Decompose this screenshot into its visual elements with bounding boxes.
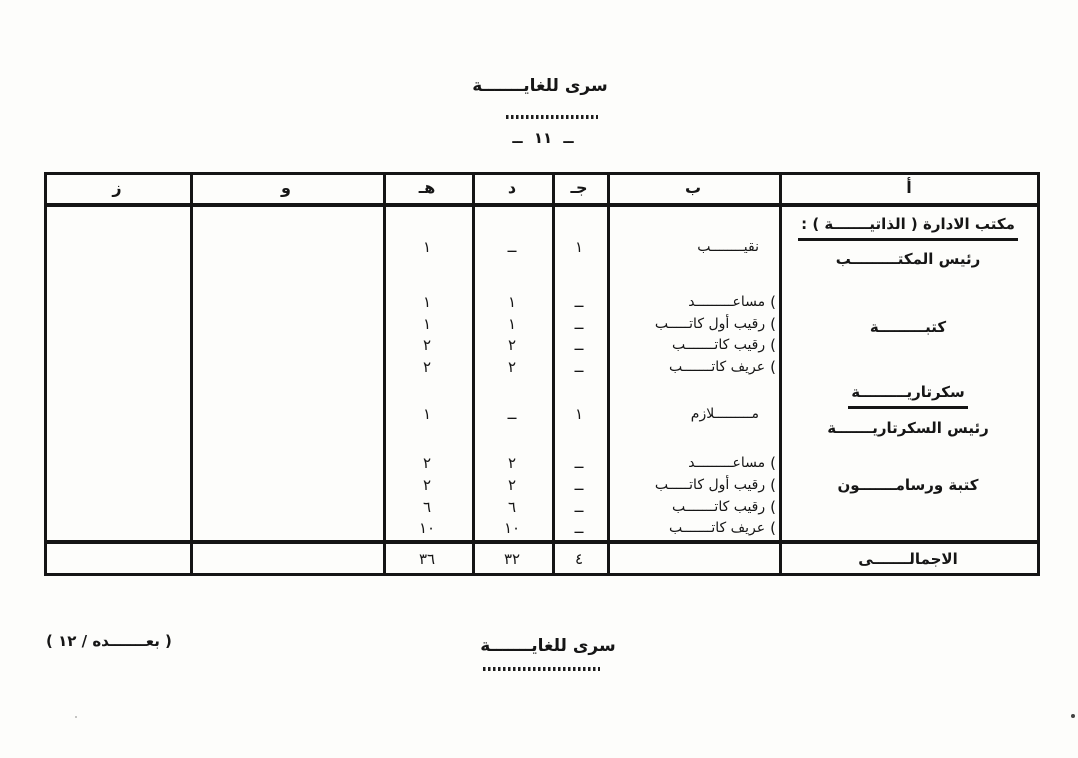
rank-row: ( مساعـــــــــد [688,292,776,312]
classification-banner-top: سرى للغايـــــــة [472,76,607,96]
rank-row: ( مساعـــــــــد [688,453,776,473]
rank-row: نقيــــــــب [697,237,759,257]
rank-label: رقيب كاتـــــــب [672,497,765,517]
header-separator [47,203,1037,207]
count-ncos: ٢ [490,453,534,473]
count-ncos: ٦ [490,497,534,517]
scan-speck [75,716,77,718]
totals-label: الاجمالـــــــى [783,549,1033,570]
rank-row: ( رقيب كاتـــــــب [672,335,776,355]
count-officers: ــ [557,335,601,355]
column-header-j: جـ [557,178,601,197]
totals-separator [47,540,1037,544]
rank-row: ( عريف كاتـــــــب [669,518,776,538]
column-header-a: أ [887,178,931,197]
group-brace: ( [770,475,776,495]
count-officers: ــ [557,475,601,495]
rank-row: مـــــــــلازم [691,404,759,424]
count-total: ١٠ [405,518,449,538]
staffing-table: أ ب جـ د هـ و ز مكتب الادارة ( الذاتيـــ… [44,172,1040,576]
rank-label: رقيب أول كاتـــــب [655,475,765,495]
category-title: سكرتاريـــــــــة [783,382,1033,409]
document-page: سرى للغايـــــــة ــ ١١ ــ أ ب جـ د هـ و… [0,0,1078,758]
count-officers: ١ [557,237,601,257]
rank-row: ( رقيب أول كاتـــــب [655,314,776,334]
rank-label: رقيب كاتـــــــب [672,335,765,355]
count-officers: ــ [557,518,601,538]
rank-row: ( عريف كاتـــــــب [669,357,776,377]
count-total: ١ [405,404,449,424]
count-ncos: ٢ [490,335,534,355]
rank-label: رقيب أول كاتـــــب [655,314,765,334]
rank-label: نقيــــــــب [697,237,759,257]
rank-label: مساعـــــــــد [688,453,765,473]
count-total: ١ [405,237,449,257]
group-brace: ( [770,335,776,355]
group-brace: ( [770,292,776,312]
rank-label: مساعـــــــــد [688,292,765,312]
column-divider [607,175,610,573]
count-ncos: ٢ [490,357,534,377]
column-divider [472,175,475,573]
count-total: ١ [405,292,449,312]
decorative-squiggle-bottom [483,667,600,671]
count-total: ٢ [405,453,449,473]
decorative-squiggle-top [506,115,598,119]
count-total: ٦ [405,497,449,517]
count-officers: ــ [557,357,601,377]
category-title: كتبـــــــــة [783,317,1033,338]
count-ncos: ــ [490,237,534,257]
classification-banner-bottom: سرى للغايـــــــة [480,636,615,656]
count-officers: ــ [557,497,601,517]
group-brace: ( [770,314,776,334]
group-brace: ( [770,497,776,517]
category-title: كتبة ورسامـــــــون [783,475,1033,496]
count-officers: ١ [557,404,601,424]
column-header-z: ز [95,178,139,197]
column-divider [552,175,555,573]
column-header-w: و [264,178,308,197]
group-brace: ( [770,453,776,473]
category-subtitle: رئيس السكرتاريـــــــة [783,418,1033,439]
category-subtitle: رئيس المكتـــــــــب [783,249,1033,270]
page-number: ــ ١١ ــ [512,129,573,147]
count-ncos: ١٠ [490,518,534,538]
group-brace: ( [770,518,776,538]
count-ncos: ٢ [490,475,534,495]
totals-total: ٣٦ [405,549,449,569]
column-divider [190,175,193,573]
count-total: ٢ [405,335,449,355]
continuation-note: ( بعـــــــده / ١٢ ) [46,632,172,650]
count-ncos: ١ [490,292,534,312]
count-officers: ــ [557,453,601,473]
category-title-text: سكرتاريـــــــــة [848,382,968,409]
rank-label: مـــــــــلازم [691,404,759,424]
count-officers: ــ [557,292,601,312]
rank-row: ( رقيب كاتـــــــب [672,497,776,517]
category-title: مكتب الادارة ( الذاتيـــــــة ) : [783,214,1033,241]
column-header-h: هـ [405,178,449,197]
count-officers: ــ [557,314,601,334]
group-brace: ( [770,357,776,377]
column-header-d: د [490,178,534,197]
category-title-text: مكتب الادارة ( الذاتيـــــــة ) : [798,214,1018,241]
totals-officers: ٤ [557,549,601,569]
rank-label: عريف كاتـــــــب [669,357,765,377]
totals-ncos: ٣٢ [490,549,534,569]
count-total: ٢ [405,357,449,377]
column-divider [779,175,782,573]
count-total: ١ [405,314,449,334]
column-header-b: ب [671,178,715,197]
rank-row: ( رقيب أول كاتـــــب [655,475,776,495]
rank-label: عريف كاتـــــــب [669,518,765,538]
count-total: ٢ [405,475,449,495]
count-ncos: ١ [490,314,534,334]
scan-speck [1071,714,1075,718]
count-ncos: ــ [490,404,534,424]
column-divider [383,175,386,573]
